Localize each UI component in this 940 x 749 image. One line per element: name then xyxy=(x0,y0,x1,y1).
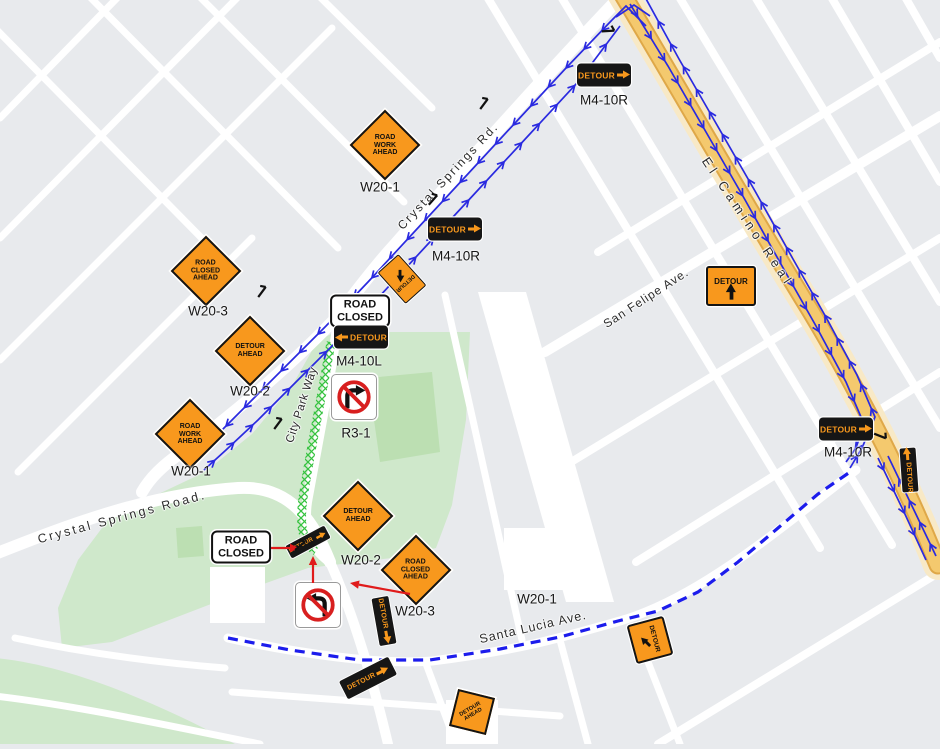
map-base-graphics xyxy=(0,0,940,744)
traffic-detour-map: Crystal Springs Rd. El Camino Real San F… xyxy=(0,0,940,744)
